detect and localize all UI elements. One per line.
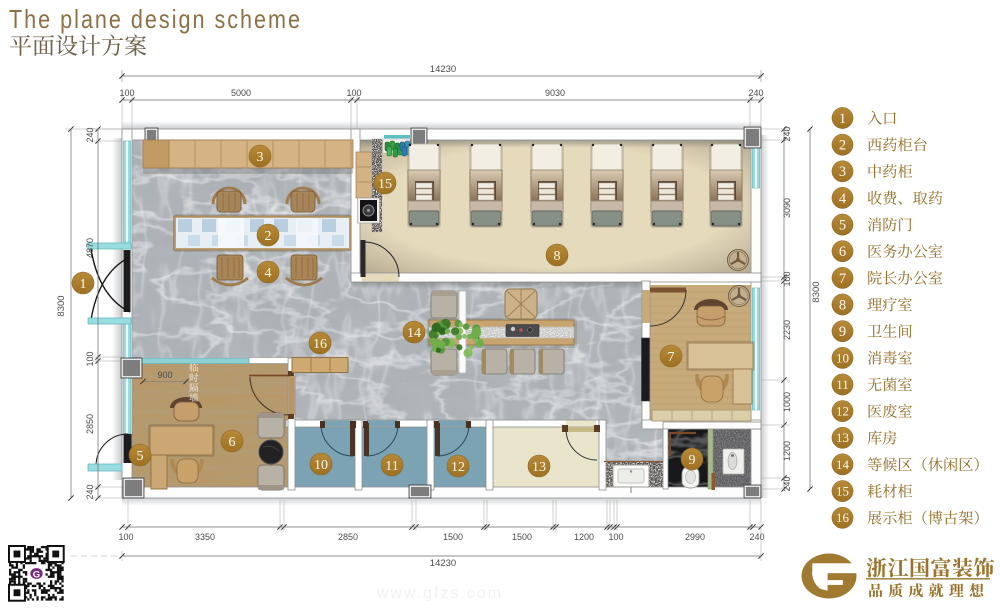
svg-text:15: 15 xyxy=(378,177,392,192)
svg-text:www.gfzs.com: www.gfzs.com xyxy=(376,585,503,602)
svg-text:9: 9 xyxy=(839,324,846,340)
svg-text:3: 3 xyxy=(839,164,846,180)
svg-text:1200: 1200 xyxy=(574,532,594,542)
svg-text:2: 2 xyxy=(839,138,846,154)
svg-text:14230: 14230 xyxy=(430,64,456,75)
svg-text:9: 9 xyxy=(689,453,696,468)
svg-text:6: 6 xyxy=(229,435,236,450)
svg-text:240: 240 xyxy=(85,127,95,142)
svg-text:13: 13 xyxy=(836,430,849,445)
svg-text:9030: 9030 xyxy=(545,88,565,98)
svg-text:100: 100 xyxy=(608,532,623,542)
svg-text:6: 6 xyxy=(839,244,846,260)
svg-text:15: 15 xyxy=(836,484,849,499)
svg-text:8300: 8300 xyxy=(56,295,67,316)
svg-text:10: 10 xyxy=(836,350,849,365)
svg-text:240: 240 xyxy=(748,88,763,98)
svg-text:2230: 2230 xyxy=(782,320,792,340)
svg-text:900: 900 xyxy=(157,370,172,380)
svg-text:1500: 1500 xyxy=(512,532,532,542)
svg-text:3350: 3350 xyxy=(195,532,215,542)
svg-text:4: 4 xyxy=(839,191,847,207)
svg-text:240: 240 xyxy=(782,476,792,491)
svg-text:5000: 5000 xyxy=(231,88,251,98)
svg-text:11: 11 xyxy=(385,459,398,474)
svg-text:16: 16 xyxy=(836,510,850,525)
svg-text:1: 1 xyxy=(839,111,846,127)
svg-text:100: 100 xyxy=(119,88,134,98)
svg-text:2990: 2990 xyxy=(685,532,705,542)
svg-text:1200: 1200 xyxy=(782,441,792,461)
svg-text:240: 240 xyxy=(782,126,792,141)
svg-text:14230: 14230 xyxy=(430,558,456,569)
svg-text:G: G xyxy=(33,570,40,581)
svg-text:14: 14 xyxy=(407,326,421,341)
svg-text:3: 3 xyxy=(257,150,264,165)
svg-text:16: 16 xyxy=(313,337,327,352)
svg-text:100: 100 xyxy=(346,88,361,98)
svg-text:12: 12 xyxy=(836,404,849,419)
svg-text:13: 13 xyxy=(532,460,546,475)
svg-text:8: 8 xyxy=(839,297,846,313)
svg-text:5: 5 xyxy=(839,218,846,234)
svg-text:8: 8 xyxy=(554,249,561,264)
svg-text:100: 100 xyxy=(85,351,95,366)
svg-text:7: 7 xyxy=(668,350,675,365)
svg-text:240: 240 xyxy=(85,484,95,499)
svg-text:8300: 8300 xyxy=(811,281,822,302)
svg-text:3090: 3090 xyxy=(782,198,792,218)
svg-text:1000: 1000 xyxy=(782,392,792,412)
svg-text:5: 5 xyxy=(137,449,144,464)
svg-text:1: 1 xyxy=(80,277,87,292)
svg-text:2850: 2850 xyxy=(85,414,95,434)
svg-text:1500: 1500 xyxy=(443,532,463,542)
svg-text:100: 100 xyxy=(118,532,133,542)
svg-text:4: 4 xyxy=(265,266,272,281)
svg-text:14: 14 xyxy=(836,457,850,472)
svg-text:10: 10 xyxy=(314,458,328,473)
svg-text:The plane design scheme: The plane design scheme xyxy=(9,4,302,34)
svg-text:7: 7 xyxy=(839,271,846,287)
svg-text:240: 240 xyxy=(749,532,764,542)
svg-text:4870: 4870 xyxy=(85,238,95,258)
svg-text:100: 100 xyxy=(782,271,792,286)
svg-text:11: 11 xyxy=(836,377,849,392)
svg-text:2: 2 xyxy=(265,229,272,244)
svg-text:12: 12 xyxy=(451,460,465,475)
svg-text:2850: 2850 xyxy=(338,532,358,542)
